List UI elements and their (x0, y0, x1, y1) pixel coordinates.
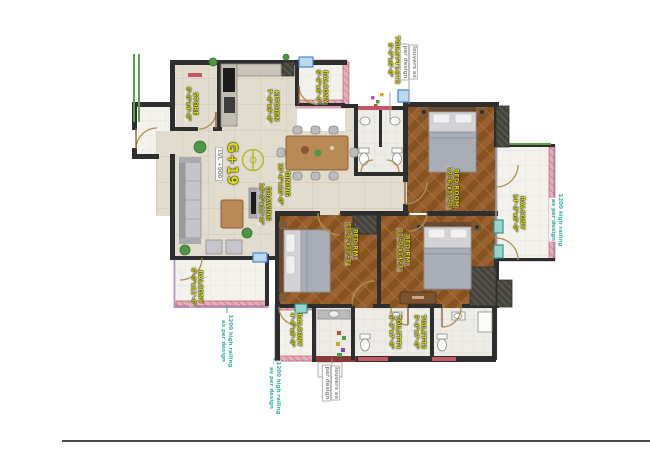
note-line: louvers as (331, 365, 340, 401)
tower-level-marker: G+19 LVL +900 (215, 142, 239, 186)
railing-note-left: 1200 high railing as per design (219, 314, 233, 369)
louvers-note-top: louvers as per design (400, 44, 418, 81)
note-line: 1200 high railing (274, 361, 281, 416)
note-line: 1200 high railing (556, 193, 563, 248)
note-line: per design (322, 365, 331, 402)
note-line: 1200 high railing (226, 314, 233, 369)
level-label: LVL +900 (215, 147, 223, 182)
note-line: louvers as (409, 44, 418, 80)
railing-note-right: 1200 high railing as per design (549, 193, 563, 248)
note-line: as per design (267, 366, 274, 410)
floor-plan-canvas: STORE 6'-0"x4'-6" KITCHEN 7'-6"x9'-6" BA… (0, 0, 650, 450)
tower-label: G+19 (224, 142, 239, 186)
louvers-note-bottom: louvers as per design (322, 365, 340, 402)
railing-note-bottom: 1200 high railing as per design (267, 361, 281, 416)
note-line: per design (400, 44, 409, 81)
note-line: as per design (549, 198, 556, 242)
note-line: as per design (219, 319, 226, 363)
page-footer-rule (62, 440, 650, 442)
